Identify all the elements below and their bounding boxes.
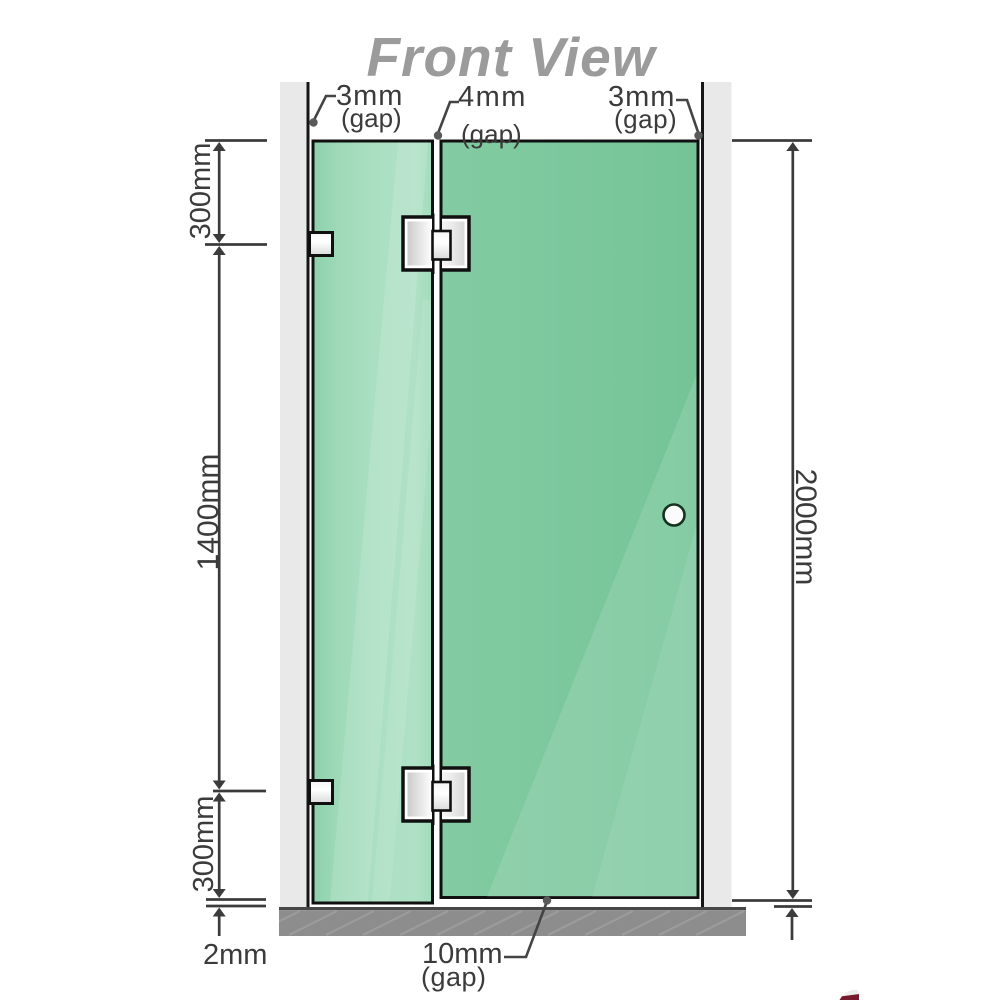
svg-text:2000mm: 2000mm: [789, 469, 822, 586]
svg-text:Front View: Front View: [366, 26, 657, 88]
svg-text:2mm: 2mm: [203, 939, 267, 971]
svg-text:1400mm: 1400mm: [192, 454, 225, 571]
svg-text:300mm: 300mm: [185, 143, 217, 240]
svg-text:4mm: 4mm: [458, 81, 527, 113]
svg-text:(gap): (gap): [614, 104, 677, 134]
svg-text:(gap): (gap): [461, 119, 522, 149]
svg-text:(gap): (gap): [421, 962, 487, 992]
svg-text:300mm: 300mm: [188, 796, 220, 893]
svg-text:(gap): (gap): [341, 103, 402, 133]
